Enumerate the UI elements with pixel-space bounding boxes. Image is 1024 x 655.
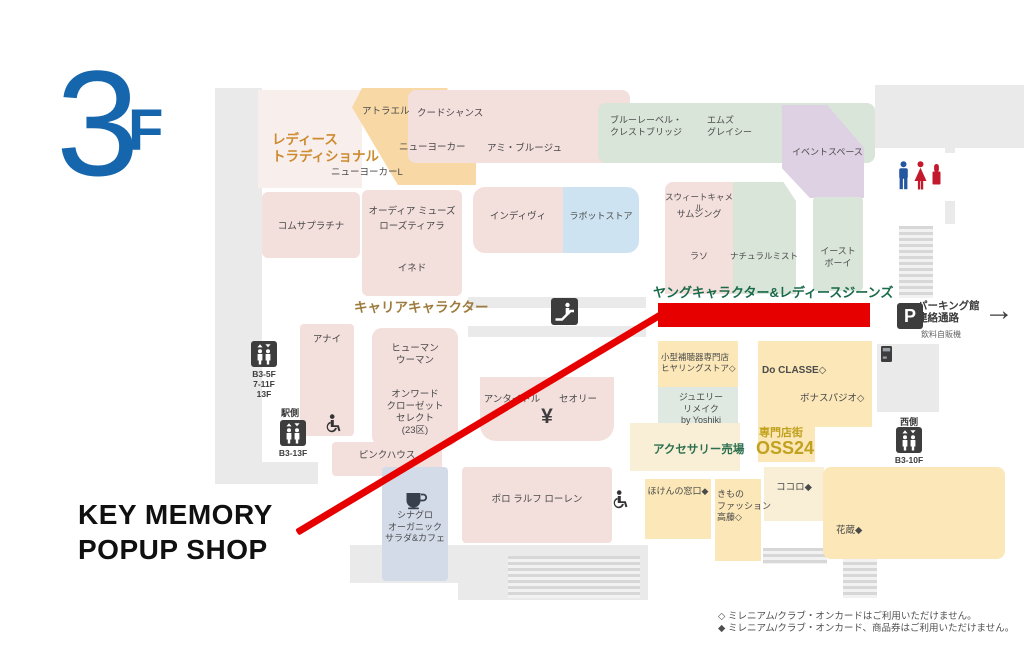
restroom-men-icon [897,161,910,190]
map-region-natural-mist-block [733,182,796,294]
elevator-icon [896,427,922,453]
floor-map-page: 3 F レディース トラディショナルアトラエルニューヨーカーニューヨーカーLクー… [0,0,1024,655]
label-odia-muse: オーディア ミューズ [362,206,462,218]
elevator-icon [280,420,306,446]
footnotes: ◇ ミレニアム/クラブ・オンカードはご利用いただけません。 ◆ ミレニアム/クラ… [718,611,1014,634]
label-laso: ラソ [663,251,735,263]
parking-stairs [899,226,933,298]
label-east-boy: イースト ボーイ [813,246,863,269]
label-comme-ca-platinum: コムサプラチナ [262,221,360,233]
label-anayi: アナイ [300,334,354,346]
popup-highlight-bar [658,303,870,327]
label-onward-closet-select: オンワード クローゼット セレクト (23区) [372,389,458,438]
label-station-side-label: 駅側 [281,408,299,420]
label-kimono-fashion-takato: きもの ファッション 高藤◇ [717,489,771,524]
label-ladies-traditional-label: レディース トラディショナル [272,132,379,166]
label-indivi: インディヴィ [473,211,563,223]
label-elevator-b3-13f-label: B3-13F [271,448,315,459]
label-parking-connection-label: パーキング館 連絡通路 [917,300,980,324]
label-cinagro-organic-salad-cafe: シナグロ オーガニック サラダ&カフェ [382,510,448,545]
popup-shop-label: KEY MEMORY POPUP SHOP [78,498,273,567]
label-rose-tiara: ローズティアラ [362,221,462,233]
small-stairs [763,548,827,564]
bottom-center-stairs [508,556,640,598]
cafe-icon [404,491,428,510]
label-do-classe: Do CLASSE◇ [762,364,826,377]
corridor-top-right-corridor [875,85,1024,148]
map-region-hanakura-block [823,467,1005,559]
footnote-diamond-outline: ◇ ミレニアム/クラブ・オンカードはご利用いただけません。 [718,611,1014,623]
cosmetics-icon [931,162,942,189]
label-bonas-pajio: ボナスパジオ◇ [800,393,864,405]
label-young-character-ladies-jeans-label: ヤングキャラクター&レディースジーンズ [653,285,893,302]
label-coud-chance: クードシャンス [417,108,483,120]
parking-icon: P [897,303,923,329]
label-oss24-label: OSS24 [756,437,814,460]
label-human-woman: ヒューマン ウーマン [372,343,458,368]
label-new-yorker-l: ニューヨーカーL [331,167,403,179]
escalator-icon [551,298,578,325]
label-elevator-b3-5f-label: B3-5F 7-11F 13F [243,369,285,400]
label-hanakura: 花蔵◆ [836,525,862,537]
label-something: サムシング [663,209,735,221]
map-region-east-boy-block [813,197,863,291]
label-ami-brooge: アミ・ブルージュ [487,143,562,155]
label-kokoro: ココロ◆ [764,482,824,494]
label-event-space: イベントスペース [792,147,863,159]
label-hoken-no-madoguchi: ほけんの窓口◆ [645,486,711,498]
popup-shop-label-line1: KEY MEMORY [78,498,273,533]
wheelchair-icon [325,414,342,433]
label-blue-label-crestbridge: ブルーレーベル・ クレストブリッジ [610,115,682,138]
elevator-icon [251,341,277,367]
arrow-right-icon: → [984,296,1014,326]
corridor-left-bottom-band [215,462,318,484]
label-new-yorker: ニューヨーカー [399,142,466,154]
corridor-left-corridor [215,88,262,464]
popup-shop-label-line2: POPUP SHOP [78,533,273,568]
label-natural-mist: ナチュラルミスト [730,251,798,262]
label-ms-gracy: エムズ グレイシー [707,115,752,138]
label-elevator-b3-10f-label: B3-10F [888,455,930,466]
restroom-women-icon [913,161,928,190]
label-polo-ralph-lauren: ポロ ラルフ ローレン [462,494,612,506]
label-accessory-area-label: アクセサリー売場 [653,443,744,458]
vending-machine-icon [881,346,892,362]
footnote-diamond-solid: ◆ ミレニアム/クラブ・オンカード、商品券はご利用いただけません。 [718,623,1014,635]
label-drink-vending-label: 飲料自販機 [921,330,961,340]
label-hearing-store: 小型補聴器専門店 ヒヤリングストア◇ [661,352,736,374]
label-ined: イネド [362,263,462,275]
label-atrael: アトラエル [362,106,410,118]
label-career-character-label: キャリアキャラクター [354,299,488,317]
label-labot-store: ラボットストア [563,211,639,223]
wheelchair-icon [612,490,629,509]
label-jewelry-remake: ジュエリー リメイク by Yoshiki [668,392,734,427]
